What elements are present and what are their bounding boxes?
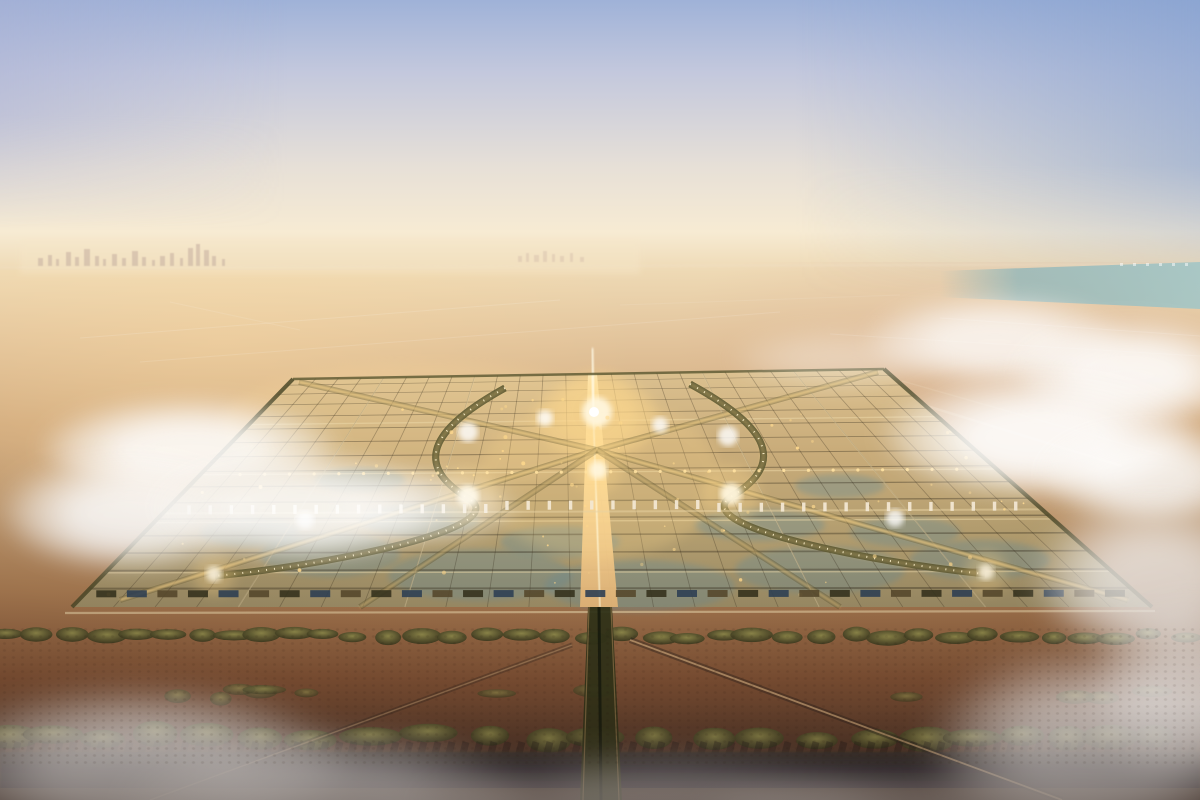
- vignette: [0, 0, 1200, 800]
- aerial-city-render: [0, 0, 1200, 800]
